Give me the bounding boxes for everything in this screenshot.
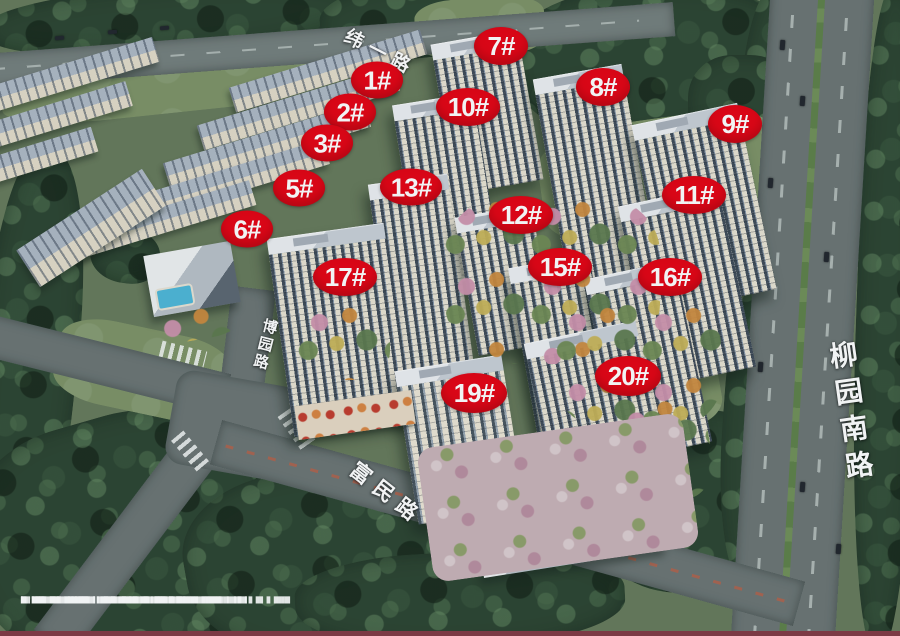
car bbox=[800, 482, 806, 492]
building-label-9: 9# bbox=[708, 105, 762, 143]
building-label-10: 10# bbox=[436, 88, 500, 126]
building-label-6: 6# bbox=[221, 211, 273, 248]
car bbox=[758, 362, 764, 372]
building-label-1: 1# bbox=[351, 62, 403, 99]
building-label-12: 12# bbox=[489, 196, 553, 234]
building-label-19: 19# bbox=[441, 373, 507, 413]
bottom-border bbox=[0, 631, 900, 636]
building-label-16: 16# bbox=[638, 258, 702, 296]
building-label-3: 3# bbox=[301, 125, 353, 162]
garden-landscaping bbox=[298, 298, 390, 380]
building-label-8: 8# bbox=[576, 68, 630, 106]
building-label-17: 17# bbox=[313, 258, 377, 296]
building-label-13: 13# bbox=[380, 169, 442, 206]
aerial-site-plan: 1#2#3#5#6#7#8#9#10#11#12#13#15#16#17#19#… bbox=[0, 0, 900, 636]
car bbox=[800, 96, 806, 106]
building-label-15: 15# bbox=[528, 248, 592, 286]
car bbox=[768, 178, 774, 188]
car bbox=[55, 36, 64, 41]
car bbox=[836, 544, 842, 554]
car bbox=[108, 30, 117, 35]
building-label-20: 20# bbox=[595, 356, 661, 396]
building-label-11: 11# bbox=[662, 176, 726, 214]
building-label-5: 5# bbox=[273, 170, 325, 207]
disclaimer-line: █ ▌███▌ ████ ▌████▌ ▌ ████ ███▌█ ██ ▌███… bbox=[21, 597, 187, 605]
car bbox=[780, 40, 786, 50]
car bbox=[824, 252, 830, 262]
building-label-7: 7# bbox=[474, 27, 528, 65]
car bbox=[160, 26, 169, 31]
